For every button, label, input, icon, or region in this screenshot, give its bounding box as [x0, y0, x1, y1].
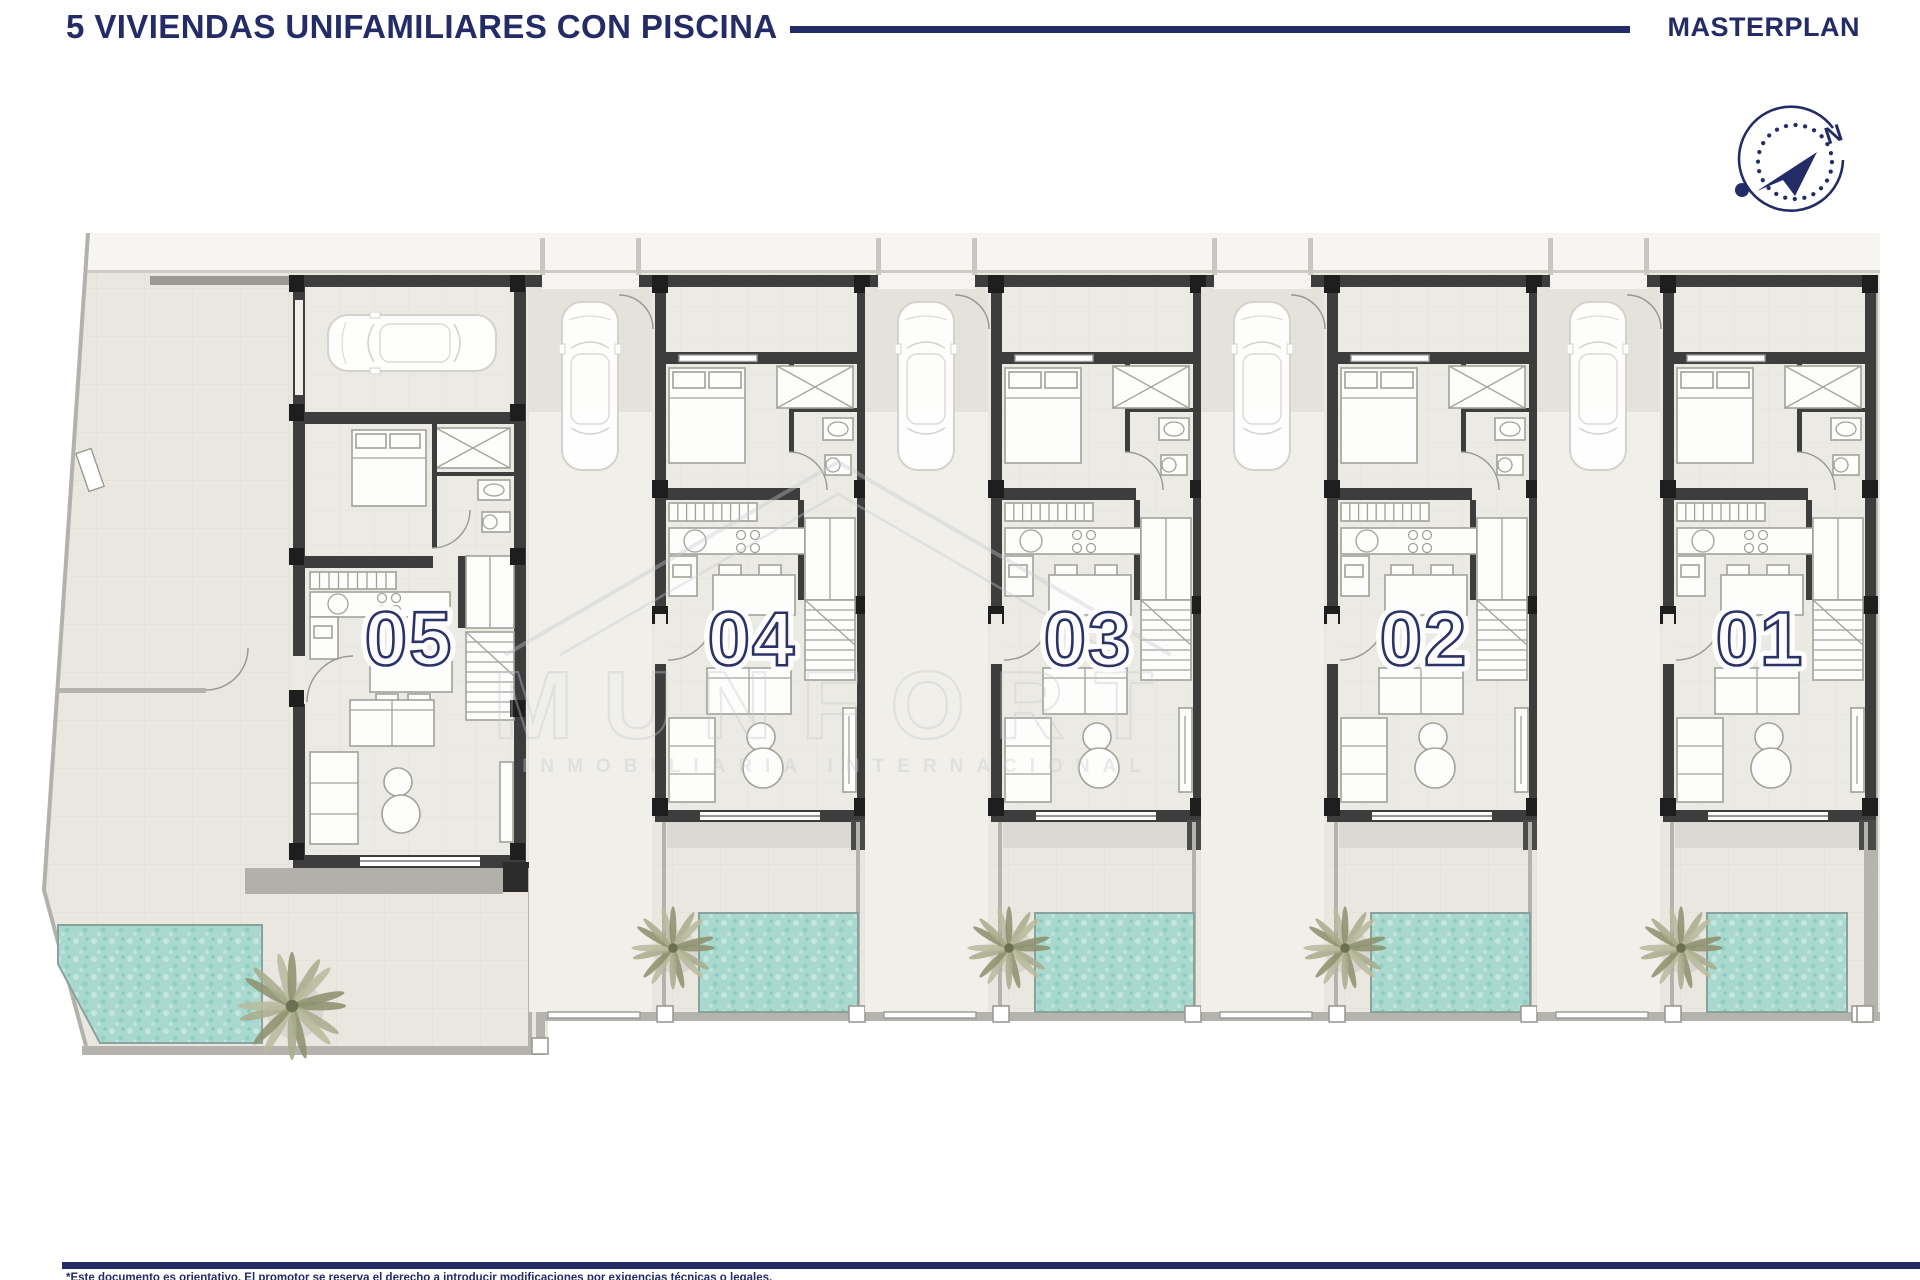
compass-icon: N	[1735, 107, 1846, 211]
palm-tree-icon	[1639, 906, 1722, 989]
palm-tree-icon	[631, 906, 714, 989]
car-topview-icon	[895, 302, 957, 470]
unit-number-label: 03	[1044, 597, 1133, 682]
watermark-subtitle: INMOBILIARIA INTERNACIONAL	[522, 756, 1154, 777]
footer-rule	[62, 1262, 1920, 1269]
unit-number-label: 02	[1380, 597, 1469, 682]
site-plan-drawing: MUNFORT INMOBILIARIA INTERNACIONAL 05050…	[0, 0, 1920, 1280]
unit-number-label: 05	[365, 597, 454, 682]
car-topview-icon	[1567, 302, 1629, 470]
compass-north-label: N	[1821, 119, 1846, 150]
car-topview-icon	[559, 302, 621, 470]
pool-unit-01	[1707, 913, 1847, 1012]
compass-needle	[1757, 152, 1817, 196]
palm-tree-icon	[238, 952, 346, 1060]
car-topview-icon	[328, 312, 496, 374]
compass-pivot-dot	[1735, 183, 1749, 197]
unit-number-label: 04	[708, 597, 797, 682]
palm-tree-icon	[967, 906, 1050, 989]
palm-tree-icon	[1303, 906, 1386, 989]
car-topview-icon	[1231, 302, 1293, 470]
pool-unit-02	[1371, 913, 1530, 1012]
pool-unit-04	[699, 913, 858, 1012]
unit-number-label: 01	[1716, 597, 1805, 682]
masterplan-sheet: 5 VIVIENDAS UNIFAMILIARES CON PISCINA MA…	[0, 0, 1920, 1280]
footer-disclaimer: *Este documento es orientativo. El promo…	[66, 1272, 772, 1280]
pool-unit-03	[1035, 913, 1194, 1012]
